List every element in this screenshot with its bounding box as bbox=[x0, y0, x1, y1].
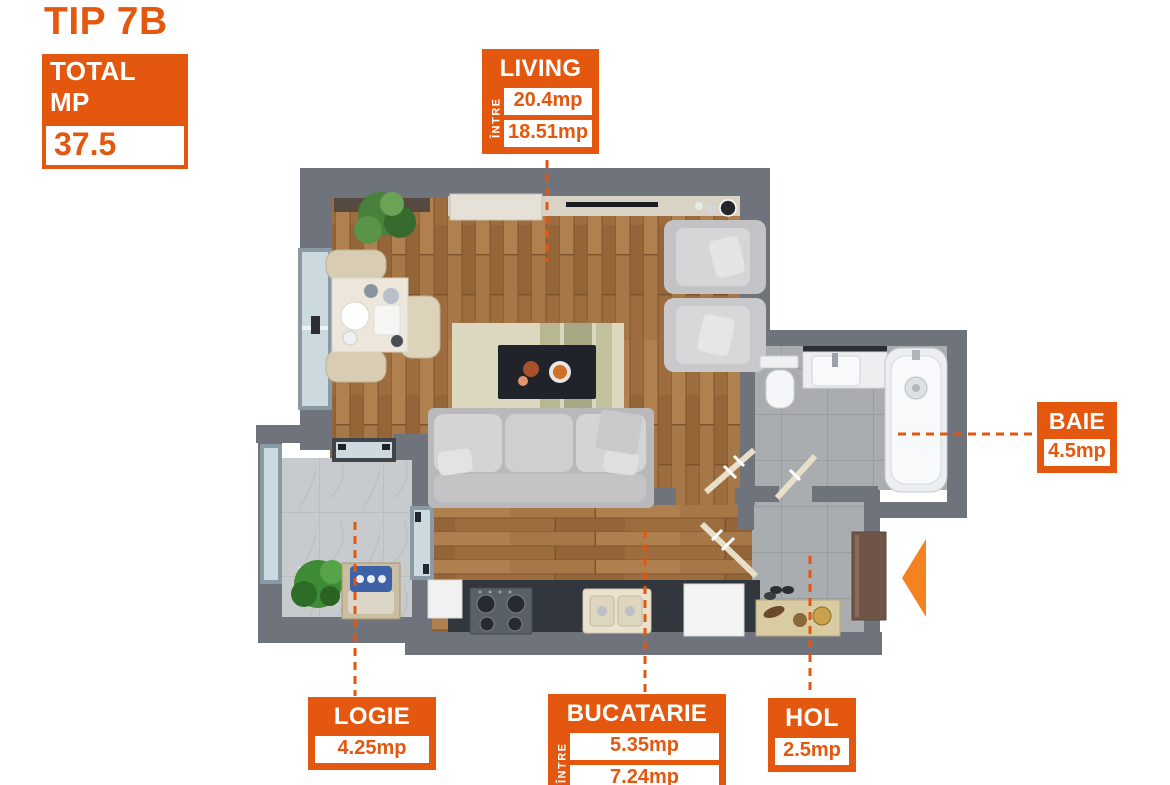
bucatarie-label: BUCATARIE ÎNTRE 5.35mp 7.24mp bbox=[548, 694, 726, 785]
total-mp-value: 37.5 bbox=[42, 122, 188, 169]
bucatarie-range-label: ÎNTRE bbox=[555, 733, 570, 785]
loggia-chair bbox=[342, 563, 400, 619]
dining-chair bbox=[326, 250, 386, 280]
armchair bbox=[664, 220, 766, 294]
entrance-arrow bbox=[902, 539, 926, 617]
coffee-table bbox=[498, 345, 596, 399]
living-area-value-1: 20.4mp bbox=[504, 88, 592, 115]
floorplan-page: TIP 7B TOTAL MP 37.5 LIVING ÎNTRE 20.4mp… bbox=[0, 0, 1170, 785]
wall-below-bathroom bbox=[878, 502, 967, 518]
loggia-side-window bbox=[260, 444, 282, 584]
loggia-plant bbox=[291, 560, 344, 608]
tv bbox=[566, 202, 658, 207]
wall-bathroom-right bbox=[947, 330, 967, 518]
kitchen-loggia-window bbox=[410, 506, 434, 580]
stove bbox=[470, 588, 532, 634]
wall-bathroom-top bbox=[740, 330, 967, 346]
wall-loggia-bottom bbox=[258, 617, 414, 643]
wall-left-upper bbox=[300, 168, 332, 254]
fridge bbox=[684, 584, 744, 636]
wall-bathroom-bottom-left bbox=[755, 486, 779, 502]
living-area-value-2: 18.51mp bbox=[504, 120, 592, 147]
sofa bbox=[428, 408, 654, 508]
living-label: LIVING ÎNTRE 20.4mp 18.51mp bbox=[482, 49, 599, 154]
bucatarie-room-name: BUCATARIE bbox=[555, 700, 719, 728]
hol-room-name: HOL bbox=[775, 704, 849, 733]
kitchen-furniture bbox=[428, 580, 760, 636]
wall-left-lower bbox=[300, 404, 332, 450]
wall-bathroom-bottom-right bbox=[812, 486, 878, 502]
logie-label: LOGIE 4.25mp bbox=[308, 697, 436, 770]
baie-label: BAIE 4.5mp bbox=[1037, 402, 1117, 473]
total-mp-label: TOTAL MP bbox=[42, 54, 188, 122]
bathroom-vanity bbox=[803, 346, 887, 388]
armchair bbox=[664, 298, 766, 372]
entrance-door bbox=[852, 532, 886, 620]
logie-area-value: 4.25mp bbox=[315, 736, 429, 763]
wall-loggia-top-right bbox=[394, 434, 432, 460]
total-mp-box: TOTAL MP 37.5 bbox=[42, 54, 188, 169]
living-room-name: LIVING bbox=[489, 55, 592, 83]
wall-hall-left bbox=[738, 488, 754, 530]
bathtub bbox=[885, 348, 947, 492]
kitchen-cabinet bbox=[428, 580, 462, 618]
logie-room-name: LOGIE bbox=[315, 703, 429, 731]
hol-area-value: 2.5mp bbox=[775, 738, 849, 765]
baie-area-value: 4.5mp bbox=[1044, 439, 1110, 466]
bucatarie-area-value-1: 5.35mp bbox=[570, 733, 719, 760]
dining-chair bbox=[326, 350, 386, 382]
living-range-label: ÎNTRE bbox=[489, 88, 504, 147]
bucatarie-area-value-2: 7.24mp bbox=[570, 765, 719, 785]
baie-room-name: BAIE bbox=[1044, 408, 1110, 434]
kitchen-sink bbox=[583, 589, 651, 633]
loggia-door-window bbox=[332, 438, 396, 462]
plan-title: TIP 7B bbox=[44, 0, 168, 44]
hol-label: HOL 2.5mp bbox=[768, 698, 856, 772]
